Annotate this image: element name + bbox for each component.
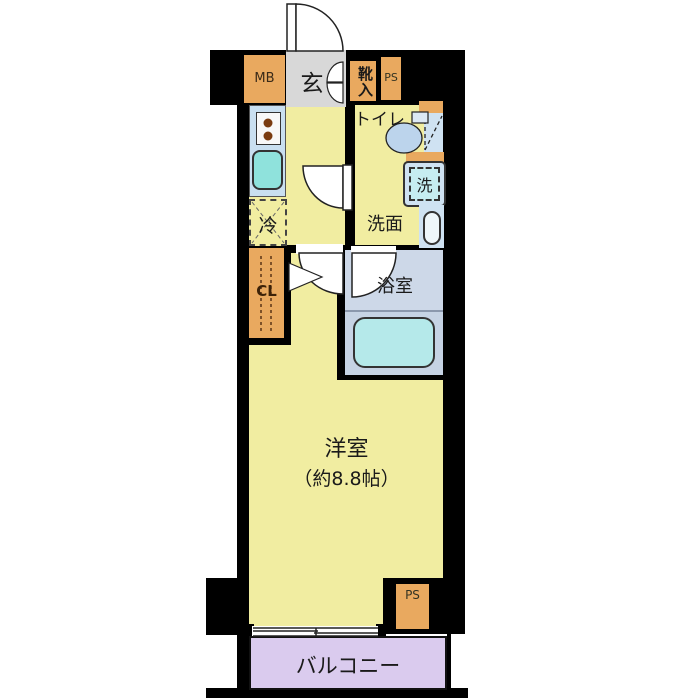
label-genkan: 玄 (286, 64, 338, 98)
label-washroom: 洗面 (353, 210, 417, 236)
entrance-door-icon (287, 4, 343, 51)
balcony-window-icon (253, 628, 378, 636)
label-shoe-cabinet: 靴入 (355, 61, 376, 103)
main-room-door-icon (289, 244, 343, 294)
label-ps-bottom: PS (396, 588, 429, 602)
label-balcony: バルコニー (249, 650, 447, 680)
label-main-room-size: （約8.8帖） (249, 464, 444, 491)
stove-burners-icon (264, 119, 273, 141)
label-ps-top: PS (381, 71, 401, 84)
plan-linework (0, 0, 700, 700)
label-main-room: 洋室 (249, 431, 444, 463)
washroom-door-icon (303, 165, 352, 210)
floor-plan: MB 玄 靴入 PS トイレ 冷 洗 洗面 CL 浴室 洋室 （約8.8帖） P… (0, 0, 700, 700)
label-toilet: トイレ (354, 105, 418, 130)
label-bathroom: 浴室 (347, 272, 443, 298)
label-fridge: 冷 (249, 211, 287, 238)
label-mb: MB (244, 71, 285, 86)
label-closet: CL (249, 282, 284, 300)
label-washer: 洗 (403, 172, 446, 196)
